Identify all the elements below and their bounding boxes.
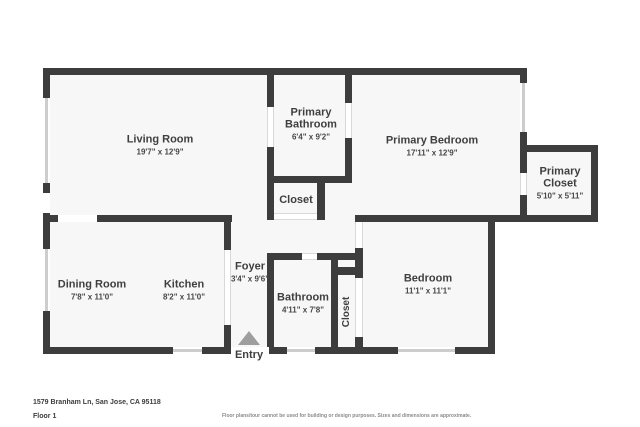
room-name-bedroom-closet: Closet [341,297,353,328]
room-label-bedroom-closet: Closet [341,297,353,328]
room-name-bedroom: Bedroom [404,273,452,285]
wall-living-dining-stub [50,215,58,222]
room-name-foyer: Foyer [231,261,269,273]
wall-hall-closet-right [317,176,325,220]
room-dims-primary-bedroom: 17'11" x 12'9" [386,149,478,158]
room-label-living: Living Room 19'7" x 12'9" [127,134,194,157]
window-living-left [43,98,50,183]
opening-living-dining [58,215,97,222]
room-dims-kitchen: 8'2" x 11'0" [163,293,205,302]
room-name-kitchen: Kitchen [163,279,205,291]
room-dims-bedroom: 11'1" x 11'1" [404,287,452,296]
room-name-primary-bedroom: Primary Bedroom [386,135,478,147]
room-name-primary-closet: Primary Closet [527,166,593,190]
wall-top [43,68,527,75]
floorplan-canvas: Living Room 19'7" x 12'9" Primary Bathro… [0,0,640,427]
wall-primary-closet-top [527,145,598,152]
room-name-primary-bathroom: Primary Bathroom [278,107,344,131]
room-label-primary-bedroom: Primary Bedroom 17'11" x 12'9" [386,135,478,158]
door-primary-bathroom-west [267,107,274,147]
room-label-foyer: Foyer 3'4" x 9'6" [231,261,269,284]
window-bathroom-bottom [287,347,315,354]
room-label-kitchen: Kitchen 8'2" x 11'0" [163,279,205,302]
disclaimer-text: Floor plans/tour cannot be used for buil… [222,413,471,419]
window-living-left-small [43,193,50,213]
wall-bedroom-left-lower [355,337,363,354]
entry-arrow-icon [238,331,260,345]
door-hall-closet [274,213,317,220]
room-label-primary-closet: Primary Closet 5'10" x 5'11" [527,166,593,201]
room-name-dining: Dining Room [58,279,126,291]
room-name-hall-closet: Closet [279,194,313,206]
room-label-dining: Dining Room 7'8" x 11'0" [58,279,126,302]
room-label-bathroom: Bathroom 4'11" x 7'8" [277,292,329,315]
room-label-primary-bathroom: Primary Bathroom 6'4" x 9'2" [278,107,344,142]
entry-label: Entry [235,349,263,361]
window-kitchen-bottom [173,347,202,354]
wall-bedroom-right [488,222,495,354]
room-dims-bathroom: 4'11" x 7'8" [277,306,329,315]
address-text: 1579 Branham Ln, San Jose, CA 95118 [33,399,161,406]
floor-number-text: Floor 1 [33,413,56,420]
window-dining-left [43,249,50,311]
room-name-living: Living Room [127,134,194,146]
wall-primary-closet-bottom [527,215,598,222]
room-dims-foyer: 3'4" x 9'6" [231,275,269,284]
room-label-hall-closet: Closet [279,194,313,206]
door-primary-bathroom-east [345,103,352,138]
wall-bedroom-left-upper [355,248,363,278]
window-primary-bedroom-right [520,83,527,132]
wall-living-dining-divider [97,215,232,222]
room-label-bedroom: Bedroom 11'1" x 11'1" [404,273,452,296]
room-dims-living: 19'7" x 12'9" [127,148,194,157]
wall-living-pbath-divider [267,75,274,220]
wall-bedrooms-divider [355,215,527,222]
wall-pbath-bottom [267,176,352,183]
window-bedroom-bottom [398,347,455,354]
opening-kitchen-foyer [224,250,231,325]
door-bedroom-closet [355,278,363,337]
door-bathroom [302,253,317,260]
door-bedroom [355,222,363,248]
room-name-bathroom: Bathroom [277,292,329,304]
room-dims-primary-bathroom: 6'4" x 9'2" [278,133,344,142]
wall-bottom-left [43,347,231,354]
wall-bathroom-closet-divider [331,253,338,354]
room-dims-dining: 7'8" x 11'0" [58,293,126,302]
room-dims-primary-closet: 5'10" x 5'11" [527,192,593,201]
door-primary-closet [520,173,527,195]
